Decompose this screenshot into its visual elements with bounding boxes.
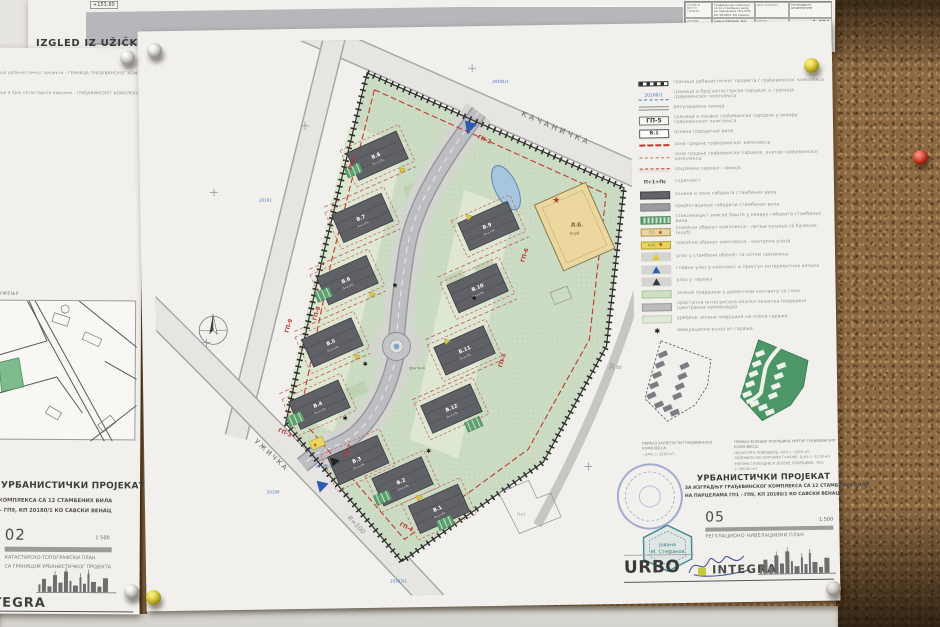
greenery-diagram [736,329,818,430]
yellow-pin [804,58,819,73]
logo-fragment: TEGRA [0,596,46,611]
fountain-label: фонтана [409,366,425,370]
legend-symbol-boundary [638,81,668,86]
legend-text: уређене зелене површине на плочи гараже [677,315,788,322]
legend-text: спратност [675,180,701,185]
entry-control-star: ★ [313,443,318,449]
cadastral-number: 20183/1 [390,578,407,583]
urbo-logo: URBO [624,557,681,578]
legend-item: граница урбанистичког пројекта / грађеви… [638,77,828,89]
red-pin [913,150,928,165]
logo-square [698,568,706,576]
legend-text: зелене површине у директном контакту са … [677,290,800,297]
gray-pin [826,581,841,596]
divider-bar [705,526,833,532]
mini-diagrams [642,329,834,432]
legend-text: приступна интегрисана колско-пешачка пов… [677,299,832,311]
svg-text:Јована: Јована [658,542,676,548]
skyline-graphic [36,568,116,596]
cadastral-number: 20192 [259,197,272,202]
titleblock-label: ДЕО ПРОЈЕКТА [755,2,789,18]
legend-text: ознака породичне виле [674,130,733,136]
legend-item: зона градње грађевинског комплекса [639,139,829,151]
cork-shadow [836,500,940,627]
legend-text: зона градње грађевинског комплекса [674,142,770,148]
grid-cross [210,188,218,196]
location-map-heading: М ОКРУЖЕЊУ [0,292,19,297]
cadastral-number: 20180/1 [315,463,332,468]
neighbor-label: П+1 [517,511,526,516]
legend-text: улаз у стамбени објекат са котом приземљ… [676,253,788,260]
skyline-graphic [758,547,836,578]
legend-item: регулациона линија [639,101,829,113]
legend-text: стакленици / зимске баште у оквиру габар… [675,213,830,225]
radius-label: R= [609,363,623,373]
legend-symbol-darkgray [640,191,670,199]
titleblock-value: УП ПРОЈЕКАТ АРХИТЕКТУРЕ [789,2,832,18]
legend-text: граница урбанистичког пројекта / грађеви… [673,79,824,86]
legend-item: приступна интегрисана колско-пешачка пов… [642,300,832,312]
legend-text: помоћни објекат комплекса - контрола ула… [676,240,791,247]
occupancy-diagram [642,330,724,431]
yellow-pin [146,590,161,605]
legend-item: ознака и зона габарита стамбених вила [640,188,830,200]
cadastral-number: 20181/1 [492,79,509,84]
legend-symbol-villa: В.1 [639,129,669,138]
legend-symbol-garline [640,168,670,172]
sheet-cadastral-plan: граница урбанистичког пројекта - ГРАНИЦА… [0,48,143,615]
legend-symbol-kos: КОС★ [641,241,671,249]
legend-symbol-gp: ГП-5 [639,116,669,125]
legend-item: Л.б.★помоћни објекат комплекса - летња к… [641,225,831,237]
drawing-name: КАТАСТАРСКО-ТОПОГРАФСКИ ПЛАН [5,556,96,562]
legend-symbol-regline [639,106,669,110]
legend-text: граница и број катастарске парцеле + гра… [673,89,828,101]
evacuation-exit-marker: ✱ [426,448,431,455]
project-subtitle: А ГП1 - ГП9, КП 20180/1 КО САВСКИ ВЕНАЦ [0,508,112,515]
club-sublabel: Клуб [570,231,580,236]
titleblock-value: Грађевински комплекс са 12 стамбених вил… [712,2,755,18]
legend-text: граница и ознака грађевинске парцеле у о… [674,113,829,125]
legend-item: улаз у стамбени објекат са котом приземљ… [641,250,831,262]
greenery-note: ПРИКАЗ ЗЕЛЕНИХ ПОВРШИНА УНУТАР ГРАЂЕВИНС… [734,439,838,473]
logo-underline [0,611,133,613]
evacuation-exit-marker: ✱ [392,282,397,289]
sheet-regulation-plan: фонтана★Л.б.КлубВ.8П+1+ПсВ.7П+1+ПсВ.6П+1… [137,21,840,612]
legend-line: граница и број катастарске парцеле - ГРА… [0,90,142,96]
plan-legend: граница урбанистичког пројекта / грађеви… [638,77,832,340]
legend-symbol-redzone [639,145,669,147]
legend-text: главни улаз у комплекс и приступ интерве… [676,265,819,272]
project-subtitle: СКОГ КОМПЛЕКСА СА 12 СТАМБЕНИХ ВИЛА [0,498,112,505]
legend-item: ГП-5граница и ознака грађевинске парцеле… [639,114,829,126]
evacuation-exit-marker: ✱ [472,295,477,302]
site-plan-drawing: фонтана★Л.б.КлубВ.8П+1+ПсВ.7П+1+ПсВ.6П+1… [152,36,639,599]
sheet-number: 02 [5,526,26,544]
legend-item: улаз у гаражу [641,275,831,287]
legend-symbol-redzone2 [640,157,670,158]
legend-symbol-gray2 [642,303,672,311]
legend-line: граница урбанистичког пројекта - ГРАНИЦА… [0,70,156,76]
legend-item: подземна гаража - линија [640,163,830,175]
evacuation-exit-marker: ✱ [343,415,348,422]
evacuation-exit-marker: ✱ [363,361,368,368]
legend-item: зона градње грађевинске парцеле, унутар … [639,151,829,163]
legend-text: улаз у гаражу [676,279,712,284]
legend-text: ознака и зона габарита стамбених вила [675,191,776,197]
logo-underline [624,579,834,583]
grid-cross [584,462,592,470]
bullet: УКУПНЕ СЛОБОДНЕ И ЗЕЛЕНЕ ПОВРШИНЕ: 76% (… [734,460,824,471]
legend-item: КОС★помоћни објекат комплекса - контрола… [641,238,831,250]
legend-text: зона градње грађевинске парцеле, унутар … [674,151,829,163]
club-label: Л.б. [571,222,584,229]
divider-bar [5,547,112,553]
white-pin [147,43,162,58]
legend-symbol-lgreen [642,290,672,298]
legend-text: оријентациони габарити стамбених вила [675,203,779,209]
legend-item: оријентациони габарити стамбених вила [640,201,830,213]
bullet: НЕЗАСТРТЕ ПОВРШИНЕ: 40% (~5840 м²) [734,450,810,455]
legend-symbol-tri-y [641,253,671,262]
titleblock-label: НАЗИВ И МЕСТО ГРАДЊЕ [685,2,712,18]
legend-item: 20180/1граница и број катастарске парцел… [639,89,829,101]
scale-value: 1:500 [785,517,833,524]
legend-symbol-greenhatch [640,216,670,224]
legend-item: П+1+Псспратност [640,176,830,188]
grid-cross [468,64,476,72]
legend-item: главни улаз у комплекс и приступ интерве… [641,262,831,274]
white-pin [124,584,139,599]
occupancy-note: ПРИКАЗ ЗАУЗЕТОСТИ ГРАЂЕВИНСКОГ КОМПЛЕКСА… [642,440,728,458]
location-map [0,300,136,441]
drawing-name: РЕГУЛАЦИОНО НИВЕЛАЦИОНИ ПЛАН [705,533,804,540]
elevation-level-label: +153.60 [90,1,118,9]
legend-text: подземна гаража - линија [675,167,741,173]
legend-item: В.1ознака породичне виле [639,126,829,138]
cadastral-number: 20190 [267,489,280,494]
legend-item: зелене површине у директном контакту са … [642,287,832,299]
legend-symbol-tri-b [641,265,671,274]
legend-symbol-cadnum: 20180/1 [639,92,669,100]
project-title: УРБАНИСТИЧКИ ПРОЈЕКАТ [1,481,145,492]
legend-item: уређене зелене површине на плочи гараже [642,312,832,324]
cork-shadow [836,0,940,70]
white-pin [120,50,135,65]
legend-symbol-pgreen [642,315,672,323]
location-map-drawing [0,301,137,442]
project-subtitle: ЗА ИЗГРАДЊУ ГРАЂЕВИНСКОГ КОМПЛЕКСА СА 12… [685,484,837,491]
legend-symbol-gray [640,204,670,212]
photo-of-corkboard: +153.60 IZGLED IZ UŽIČKE UL. 5 НАЗИВ И М… [0,0,940,627]
legend-text: регулациона линија [674,105,725,111]
parcel-label: ГП-9 [284,318,294,334]
club-star: ★ [552,196,560,206]
legend-text: помоћни објекат комплекса - летња кухиња… [676,225,831,237]
legend-symbol-tri-k [641,277,671,286]
scale-value: 1 500 [95,535,109,541]
legend-symbol-club: Л.б.★ [641,228,671,236]
legend-symbol-storeys: П+1+Пс [640,179,670,187]
project-title: УРБАНИСТИЧКИ ПРОЈЕКАТ [692,471,834,483]
sheet-number: 05 [705,509,725,525]
project-subtitle: НА ПАРЦЕЛАМА ГП1 - ГП9, КП 20180/1 КО СА… [685,492,837,499]
